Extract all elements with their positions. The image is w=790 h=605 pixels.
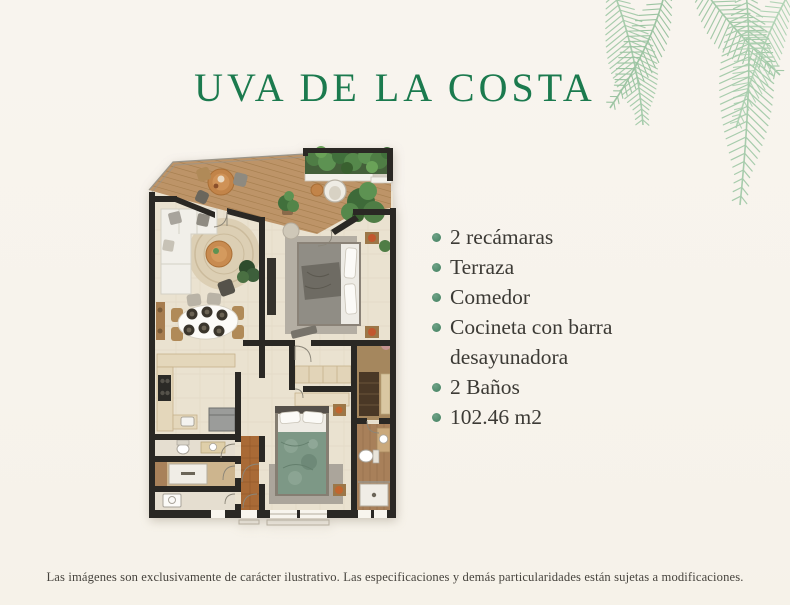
bedroom-plant <box>379 240 391 252</box>
feature-label: Cocineta con barra desayunadora <box>450 312 678 372</box>
feature-label: 2 Baños <box>450 372 678 402</box>
leaf-bullet-icon <box>432 323 441 332</box>
feature-item: Cocineta con barra desayunadora <box>432 312 682 372</box>
bathroom-secondary <box>155 440 235 456</box>
shower-room <box>155 462 235 486</box>
breakfast-bar-counter <box>157 354 235 367</box>
feature-label: 2 recámaras <box>450 222 678 252</box>
leaf-bullet-icon <box>432 413 441 422</box>
page-background: { "title": { "text": "UVA DE LA COSTA", … <box>0 0 790 605</box>
pouf <box>283 223 299 239</box>
feature-item: 2 recámaras <box>432 222 682 252</box>
laundry <box>155 492 235 510</box>
kitchen-sink <box>181 417 194 426</box>
feature-label: Comedor <box>450 282 678 312</box>
leaf-bullet-icon <box>432 383 441 392</box>
feature-item: Terraza <box>432 252 682 282</box>
refrigerator <box>209 408 235 431</box>
leaf-bullet-icon <box>432 233 441 242</box>
feature-list: 2 recámaras Terraza Comedor Cocineta con… <box>432 222 682 432</box>
feature-label: 102.46 m2 <box>450 402 678 432</box>
bed <box>297 242 361 326</box>
feature-label: Terraza <box>450 252 678 282</box>
palm-leaves-decoration <box>528 0 790 230</box>
leaf-bullet-icon <box>432 263 441 272</box>
feature-item: Comedor <box>432 282 682 312</box>
washer <box>163 494 181 507</box>
tv-console <box>267 258 276 315</box>
bed-2 <box>275 406 329 496</box>
feature-item: 102.46 m2 <box>432 402 682 432</box>
feature-item: 2 Baños <box>432 372 682 402</box>
toilet <box>177 444 189 454</box>
terrace-side-table <box>311 184 323 196</box>
disclaimer-text: Las imágenes son exclusivamente de carác… <box>0 570 790 585</box>
toilet-main <box>359 450 373 462</box>
leaf-bullet-icon <box>432 293 441 302</box>
cooktop <box>158 375 171 401</box>
page-title: UVA DE LA COSTA <box>0 67 790 109</box>
apartment-floor-plan <box>139 146 424 546</box>
bathroom-main <box>357 424 390 510</box>
